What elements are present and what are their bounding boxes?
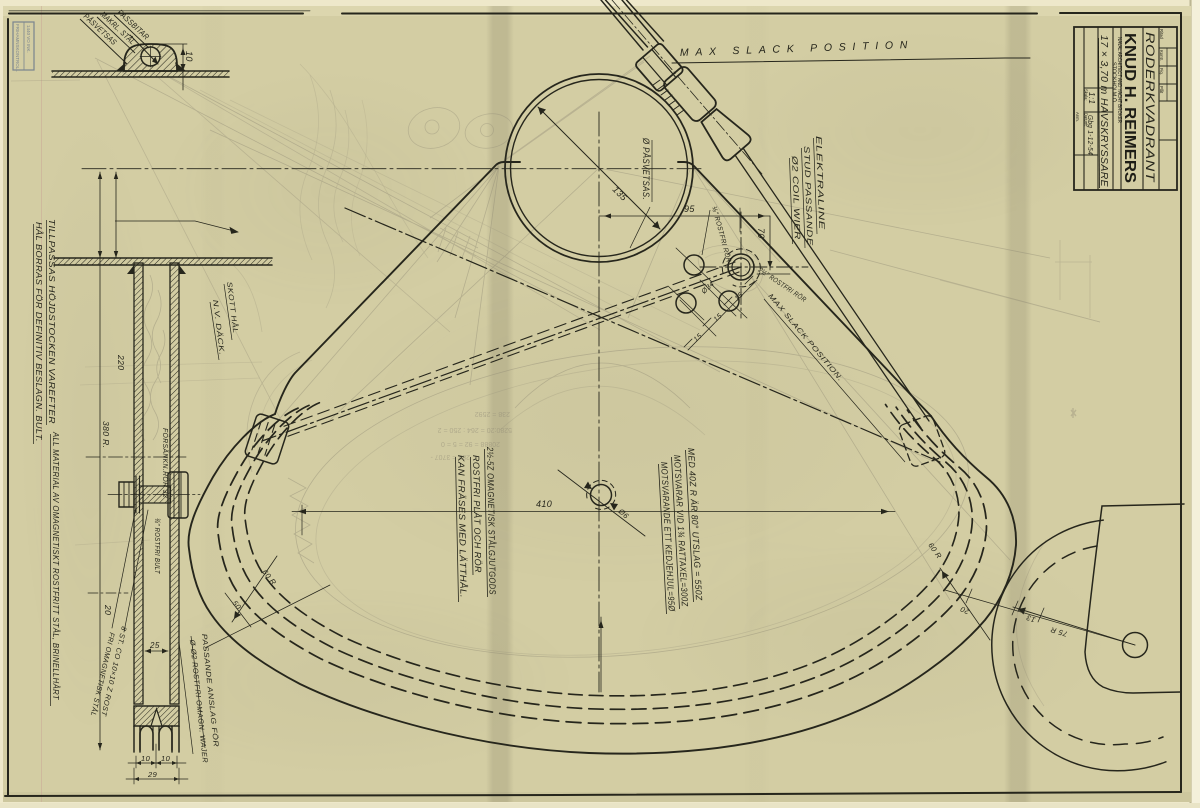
svg-text:KNUD H. REIMERS: KNUD H. REIMERS — [1121, 33, 1138, 183]
svg-text:Anm.: Anm. — [1075, 112, 1080, 122]
svg-text:10: 10 — [184, 51, 194, 62]
svg-text:238 = 2592: 238 = 2592 — [475, 410, 510, 417]
svg-text:FÖRSÄNKN.RÖR 32: FÖRSÄNKN.RÖR 32 — [161, 428, 170, 498]
svg-text:HÅL BORRAS FÖR DEFINITIV BESLA: HÅL BORRAS FÖR DEFINITIV BESLAGN. BULT. — [34, 222, 44, 442]
svg-text:Plåt: Plåt — [1159, 86, 1164, 94]
svg-text:Datum:: Datum: — [1084, 113, 1089, 127]
svg-text:Fig.: Fig. — [1159, 68, 1164, 75]
svg-text:20: 20 — [103, 604, 113, 615]
svg-text:29: 29 — [147, 770, 158, 779]
svg-text:410: 410 — [536, 499, 552, 509]
svg-text:1440 VO INK.: 1440 VO INK. — [26, 25, 31, 53]
svg-text:¾" ROSTFRI BULT: ¾" ROSTFRI BULT — [153, 518, 162, 574]
svg-text:Kontr.: Kontr. — [1159, 50, 1164, 61]
svg-text:Skala:: Skala: — [1084, 89, 1089, 101]
svg-text:Ø PÅSVETSAS.: Ø PÅSVETSAS. — [641, 137, 651, 200]
svg-text:FRIHAMNSKONTROLL: FRIHAMNSKONTROLL — [15, 24, 20, 72]
svg-text:ALL MATERIAL AV OMAGNETISKT RO: ALL MATERIAL AV OMAGNETISKT ROSTFRITT ST… — [51, 431, 61, 700]
svg-text:5280:20 = 264 : 250 = 2: 5280:20 = 264 : 250 = 2 — [438, 426, 512, 433]
svg-text:70: 70 — [756, 228, 766, 239]
svg-text:380 R.: 380 R. — [101, 421, 111, 448]
svg-text:220: 220 — [116, 354, 126, 370]
svg-text:10: 10 — [141, 754, 151, 763]
svg-text:TILLPASSAS HÖJDSTOCKEN VAREFTE: TILLPASSAS HÖJDSTOCKEN VAREFTER — [47, 219, 57, 424]
svg-text:10: 10 — [161, 754, 171, 763]
svg-text:Ritad: Ritad — [1159, 29, 1164, 39]
svg-text:95: 95 — [684, 204, 695, 214]
svg-text:25: 25 — [149, 641, 160, 650]
svg-text:STOCKHOLM Ö: STOCKHOLM Ö — [1111, 62, 1118, 103]
svg-text:RODERKVADRANT: RODERKVADRANT — [1143, 32, 1157, 184]
